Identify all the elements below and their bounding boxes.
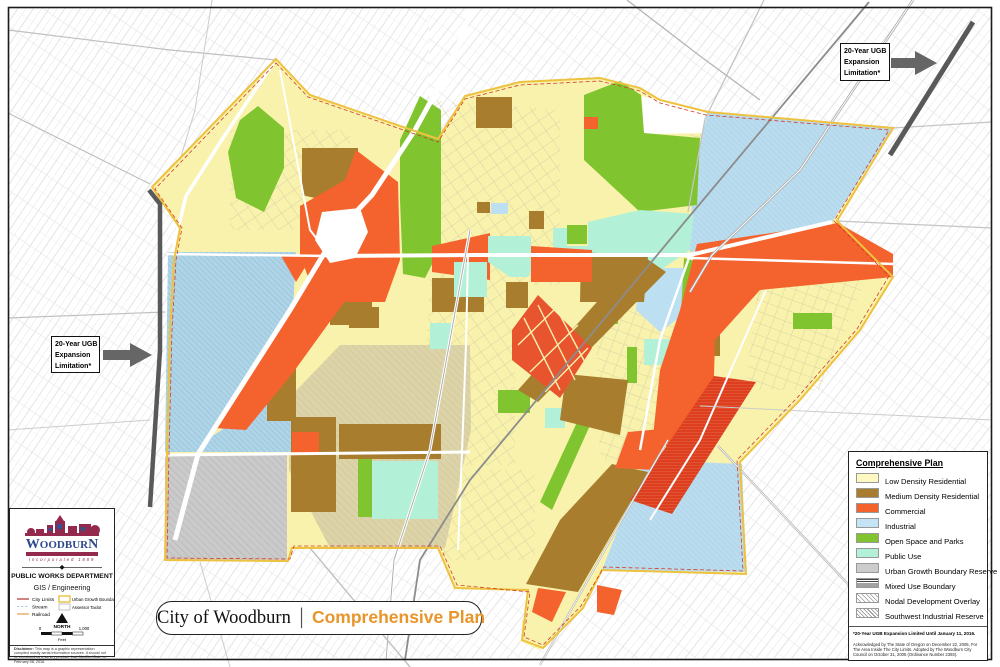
svg-text:Stream: Stream <box>32 605 47 611</box>
svg-text:Assessor Taxlot: Assessor Taxlot <box>72 605 102 610</box>
svg-text:Urban Growth Boundary: Urban Growth Boundary <box>72 597 114 602</box>
svg-text:1,000: 1,000 <box>79 626 90 631</box>
svg-text:City Limits: City Limits <box>32 597 55 603</box>
svg-text:0: 0 <box>39 626 42 631</box>
svg-text:NORTH: NORTH <box>53 624 71 630</box>
